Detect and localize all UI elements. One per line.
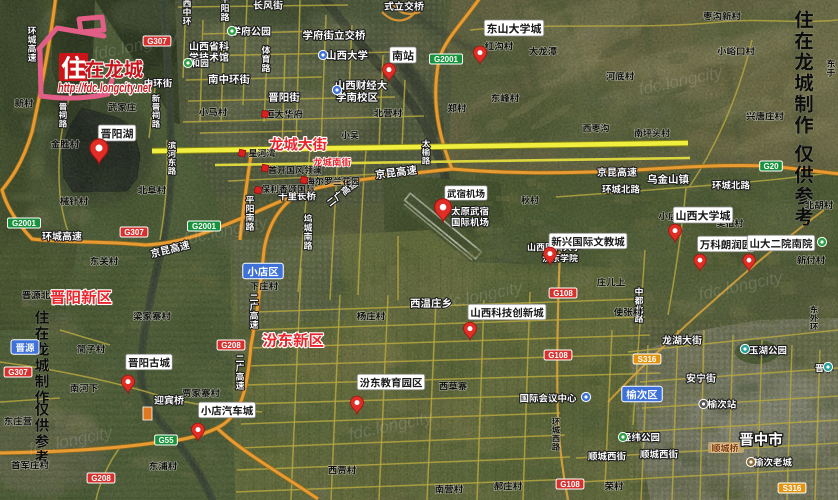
svg-text:G208: G208 [91, 474, 111, 483]
svg-text:G20: G20 [763, 162, 779, 171]
svg-text:http://fdc.longcity.net: http://fdc.longcity.net [58, 81, 152, 95]
svg-text:G307: G307 [8, 368, 28, 377]
svg-text:G2001: G2001 [434, 55, 459, 64]
svg-text:G108: G108 [548, 351, 568, 360]
svg-text:G2001: G2001 [12, 219, 37, 228]
svg-text:S316: S316 [783, 484, 802, 493]
svg-text:G2001: G2001 [192, 222, 217, 231]
svg-text:S316: S316 [638, 355, 657, 364]
svg-text:G108: G108 [553, 289, 573, 298]
svg-text:G307: G307 [147, 37, 167, 46]
svg-text:G108: G108 [560, 480, 580, 489]
svg-text:G55: G55 [158, 436, 174, 445]
svg-text:G307: G307 [124, 228, 144, 237]
svg-text:G208: G208 [221, 341, 241, 350]
